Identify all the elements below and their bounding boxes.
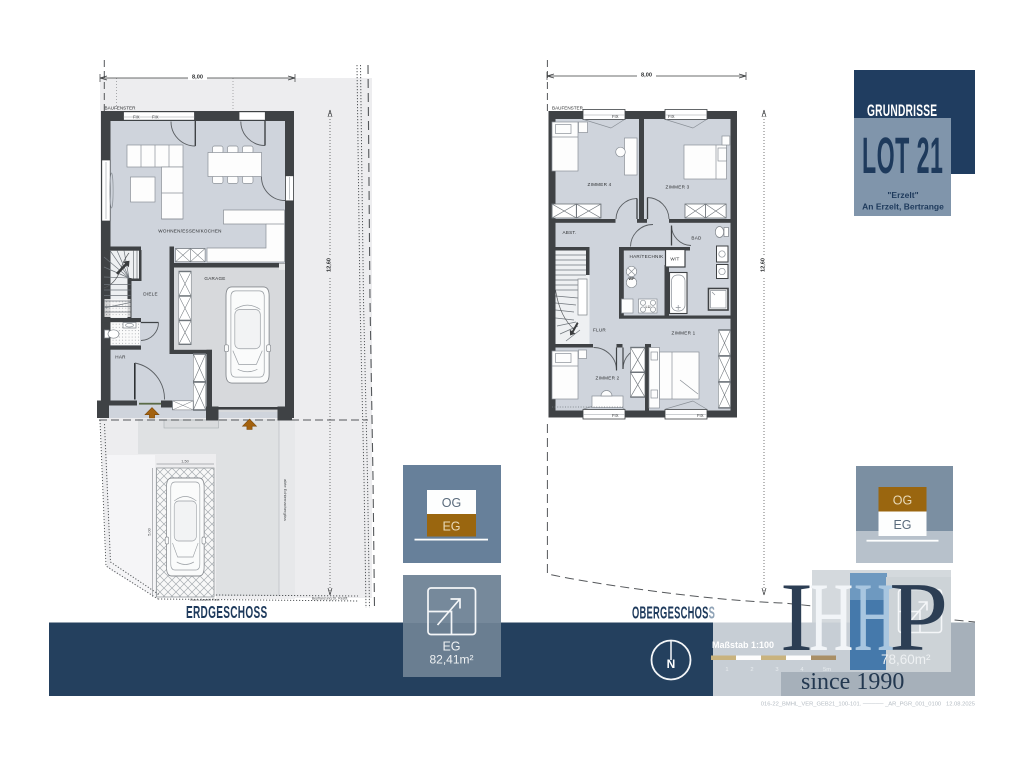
svg-text:OBERGESCHOSS: OBERGESCHOSS <box>632 603 715 623</box>
svg-text:EG: EG <box>442 520 460 534</box>
svg-text:FIX: FIX <box>133 115 140 120</box>
svg-text:Maßstab 1:100: Maßstab 1:100 <box>712 640 774 650</box>
svg-text:8,00: 8,00 <box>192 75 203 81</box>
svg-text:ABST.: ABST. <box>562 230 576 235</box>
svg-text:ZIMMER 1: ZIMMER 1 <box>672 331 696 336</box>
svg-text:P: P <box>889 563 948 673</box>
svg-text:since 1990: since 1990 <box>801 669 904 695</box>
svg-text:DIELE: DIELE <box>143 292 158 297</box>
svg-text:ZIMMER 2: ZIMMER 2 <box>596 376 620 381</box>
svg-text:LOT 21: LOT 21 <box>862 128 943 185</box>
svg-text:3: 3 <box>775 667 778 673</box>
svg-text:016-22_BMHL_VER_GEB21_100-101.: 016-22_BMHL_VER_GEB21_100-101. ───── _AR… <box>761 702 975 708</box>
svg-text:8,00: 8,00 <box>641 73 652 79</box>
svg-text:HAR: HAR <box>115 355 126 360</box>
svg-text:EG: EG <box>442 640 460 654</box>
svg-text:82,41m²: 82,41m² <box>429 653 473 667</box>
svg-text:HAR/TECHNIK: HAR/TECHNIK <box>630 254 665 259</box>
svg-text:N: N <box>667 657 676 671</box>
svg-text:FIX: FIX <box>612 114 619 119</box>
svg-text:ERDGESCHOSS: ERDGESCHOSS <box>186 603 267 623</box>
svg-text:BAUFENSTER: BAUFENSTER <box>105 106 137 111</box>
svg-text:BAUFENSTER: BAUFENSTER <box>552 106 584 111</box>
svg-text:FIX: FIX <box>697 413 704 418</box>
svg-text:FIX: FIX <box>668 114 675 119</box>
svg-text:WP: WP <box>628 277 635 281</box>
svg-text:12,60: 12,60 <box>327 258 333 272</box>
svg-text:FIX: FIX <box>152 115 159 120</box>
svg-text:EG: EG <box>893 518 911 532</box>
svg-text:12,60: 12,60 <box>761 258 767 272</box>
svg-text:1,50: 1,50 <box>181 460 188 464</box>
svg-text:GARAGE: GARAGE <box>204 276 225 281</box>
svg-text:1: 1 <box>725 667 728 673</box>
svg-text:"Erzelt": "Erzelt" <box>887 190 918 200</box>
svg-text:GRUNDRISSE: GRUNDRISSE <box>867 100 937 119</box>
svg-text:W/T: W/T <box>670 257 679 262</box>
svg-text:FIX: FIX <box>612 413 619 418</box>
svg-text:LÜ: LÜ <box>645 304 650 309</box>
svg-text:An Erzelt, Bertrange: An Erzelt, Bertrange <box>862 202 944 212</box>
svg-text:5,00: 5,00 <box>148 528 152 535</box>
svg-text:allée Echternachergäss: allée Echternachergäss <box>283 479 288 521</box>
svg-text:Bepflanzung DL Restfl.: Bepflanzung DL Restfl. <box>312 597 349 601</box>
svg-text:H: H <box>809 562 853 671</box>
svg-text:ZIMMER 3: ZIMMER 3 <box>666 185 690 190</box>
svg-text:WOHNEN/ESSEN/KOCHEN: WOHNEN/ESSEN/KOCHEN <box>158 229 221 234</box>
svg-text:2: 2 <box>750 667 753 673</box>
svg-text:5m: 5m <box>823 667 831 673</box>
svg-text:Dach-Austritt Res.: Dach-Austritt Res. <box>190 598 219 602</box>
svg-text:OG: OG <box>893 494 912 508</box>
svg-text:FLUR: FLUR <box>593 328 606 333</box>
svg-text:BAD: BAD <box>691 236 702 241</box>
svg-text:ZIMMER 4: ZIMMER 4 <box>588 182 612 187</box>
svg-text:OG: OG <box>442 496 461 510</box>
